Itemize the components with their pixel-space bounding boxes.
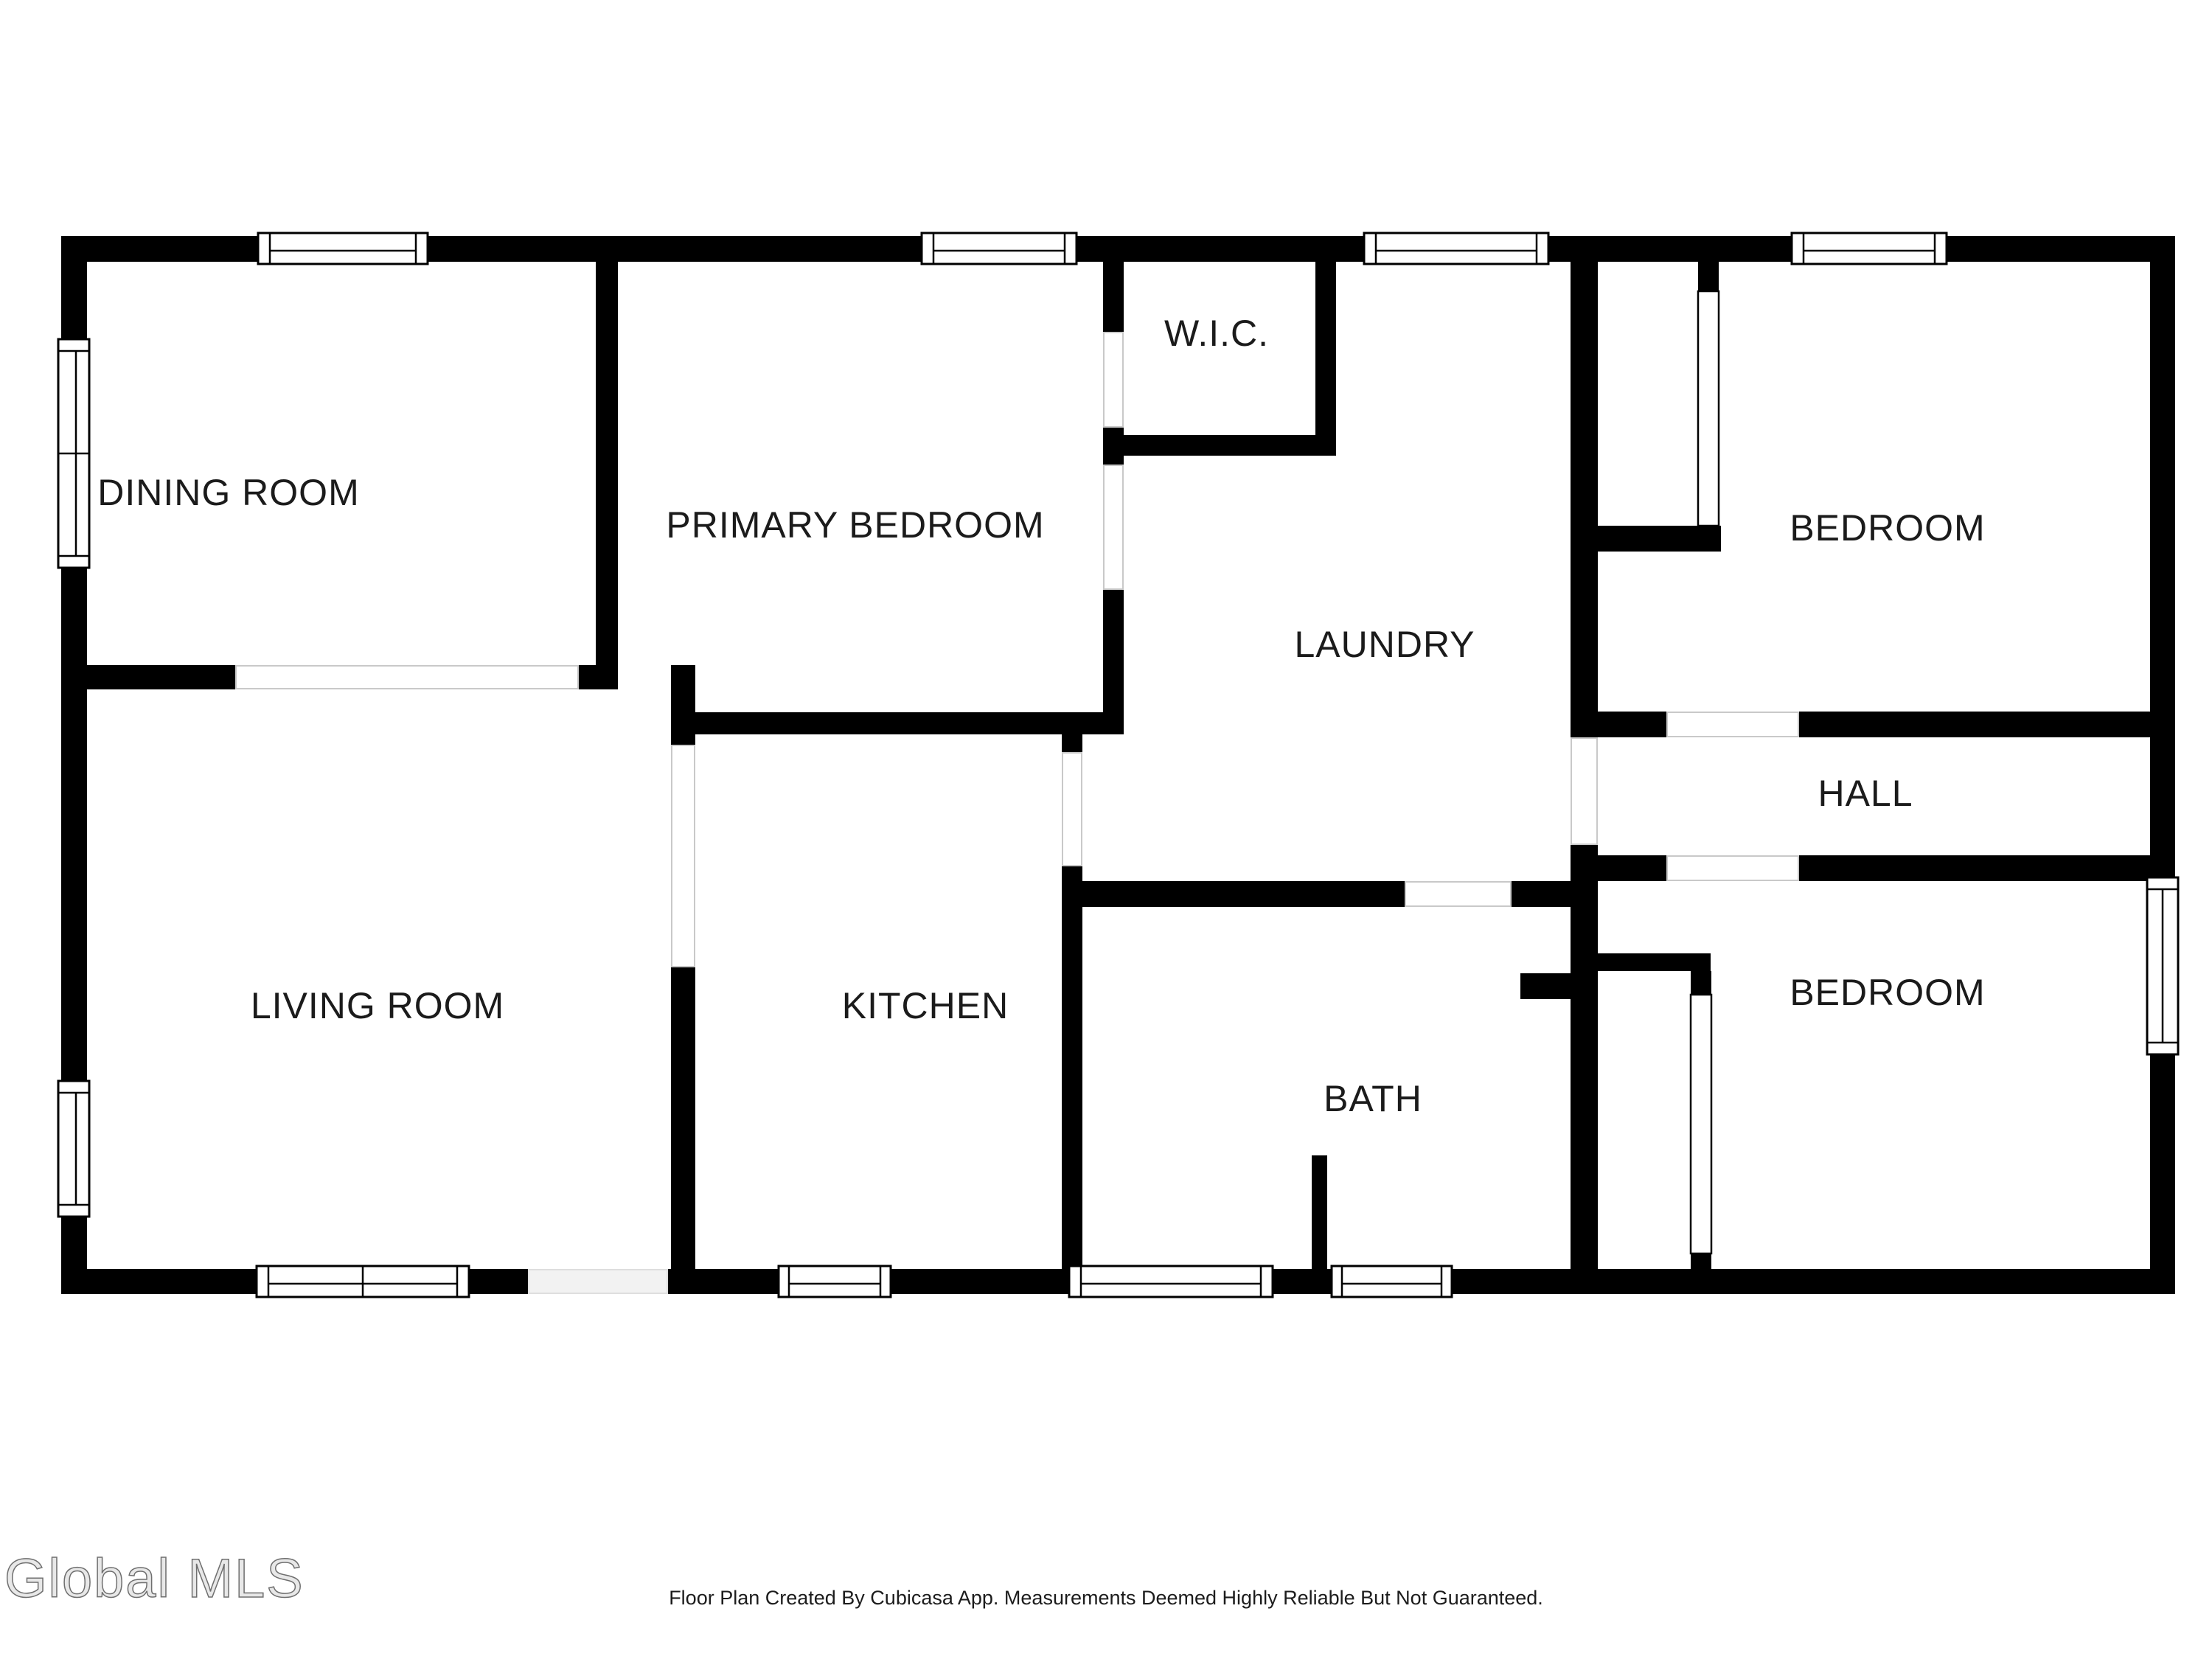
window-living-bottom <box>257 1266 469 1297</box>
door-bedroom-bottom <box>1667 856 1798 880</box>
window-dining-top <box>258 233 428 264</box>
room-label-laundry: LAUNDRY <box>1294 623 1475 666</box>
room-label-hall: HALL <box>1818 772 1913 815</box>
closet-door-top-bedroom <box>1698 291 1719 526</box>
opening-kitchen-living <box>672 745 695 967</box>
room-label-bath: BATH <box>1324 1077 1422 1120</box>
window-laundry-top <box>1364 233 1548 264</box>
window-primary-top <box>922 233 1077 264</box>
room-label-wic: W.I.C. <box>1164 312 1269 355</box>
window-bedroom-right <box>2147 877 2178 1054</box>
door-kitchen-laundry <box>1062 753 1082 866</box>
closet-door-bottom-bedroom <box>1691 995 1711 1253</box>
door-openings <box>236 333 1798 1293</box>
window-bedroom-top <box>1792 233 1947 264</box>
footer-disclaimer: Floor Plan Created By Cubicasa App. Meas… <box>669 1587 1543 1610</box>
room-label-primary-bedroom: PRIMARY BEDROOM <box>666 504 1044 546</box>
door-wic <box>1104 333 1123 427</box>
floor-plan-drawing <box>0 0 2212 1659</box>
watermark-global-mls: Global MLS <box>4 1547 305 1610</box>
door-bath <box>1405 882 1511 906</box>
window-dining-left <box>58 339 89 568</box>
door-bedroom-top <box>1667 712 1798 737</box>
floor-plan-page: DINING ROOMPRIMARY BEDROOMW.I.C.LAUNDRYB… <box>0 0 2212 1659</box>
door-entry <box>529 1270 667 1293</box>
room-label-dining-room: DINING ROOM <box>97 471 359 514</box>
room-label-kitchen: KITCHEN <box>842 984 1009 1027</box>
window-kitchen-bottom <box>779 1266 891 1297</box>
closet-doors <box>1691 291 1719 1253</box>
room-label-bedroom-bottom: BEDROOM <box>1790 971 1985 1014</box>
opening-hall-laundry <box>1571 738 1597 844</box>
window-living-left <box>58 1081 89 1217</box>
window-bath-bottom-left <box>1069 1266 1273 1297</box>
room-label-living-room: LIVING ROOM <box>251 984 504 1027</box>
room-label-bedroom-top: BEDROOM <box>1790 507 1985 549</box>
opening-dining-living <box>236 666 578 689</box>
door-primary-laundry <box>1104 465 1123 589</box>
window-bath-bottom-right <box>1332 1266 1452 1297</box>
